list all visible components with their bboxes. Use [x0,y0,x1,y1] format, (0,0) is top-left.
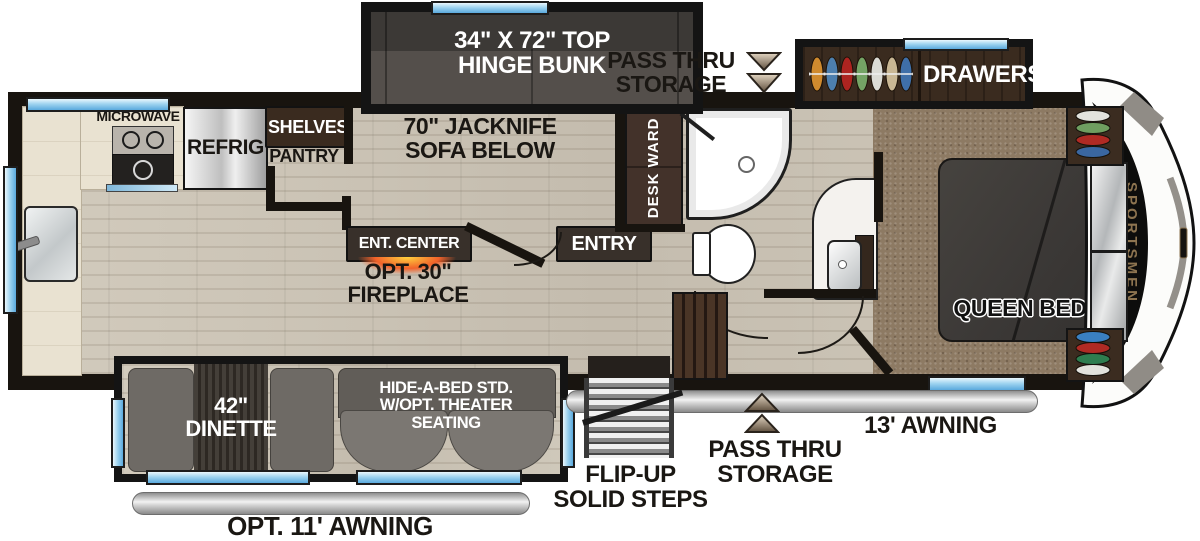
awning-13-label: 13' AWNING [838,413,1023,438]
bunk-window [431,1,549,15]
toilet-tank [692,232,711,276]
burner-icon [146,131,164,149]
pass-thru-up-arrows-icon [744,392,780,438]
slideout-window-bottom [146,470,310,485]
refrigerator: REFRIG [183,107,268,190]
wall-carpet-stub [874,152,883,222]
front-wardrobe-top [1066,106,1124,166]
interior-steps [672,292,728,380]
burner-icon [122,131,140,149]
drawers-label: DRAWERS [923,62,1025,87]
wardrobe-interior: DRAWERS [803,47,1025,101]
oven-burner-icon [133,160,153,180]
drawers-window [903,38,1009,51]
sink-drain-icon [838,260,847,269]
desk-wardrobe: DESK WARD [625,106,683,226]
clothes-hangers-icon [1068,108,1118,160]
pantry-wall [342,196,351,230]
dinette-slideout: 42"DINETTE HIDE-A-BED STD.W/OPT. THEATER… [114,356,568,482]
hide-a-bed-sofa: HIDE-A-BED STD.W/OPT. THEATERSEATING [338,368,554,472]
shelves-label: SHELVES [268,118,348,137]
entry-label: ENTRY [571,234,636,255]
dinette-label: 42"DINETTE [124,394,338,440]
pass-thru-bottom-label: PASS THRUSTORAGE [690,437,860,487]
jacknife-sofa-label: 70" JACKNIFESOFA BELOW [350,114,610,162]
door-threshold [588,356,670,378]
shelves-cabinet: SHELVES [265,106,351,148]
desk-ward-label: DESK WARD [646,108,662,228]
hide-a-bed-label: HIDE-A-BED STD.W/OPT. THEATERSEATING [338,380,554,432]
clothes-hangers-icon [1068,330,1118,376]
oven-handle [106,184,178,192]
shower-drain-icon [738,156,755,173]
pantry-wall [266,202,350,211]
rv-floorplan: MICROWAVE REFRIG SHELVES PANTRY 70" JACK… [0,0,1200,541]
slideout-window-bottom [356,470,522,485]
kitchen-window [26,97,170,112]
headboard-mirror [1090,162,1128,342]
awning-11-label: OPT. 11' AWNING [170,513,490,540]
pantry-label: PANTRY [258,147,350,166]
left-wall-window [3,166,18,314]
ent-center-label: ENT. CENTER [359,236,460,253]
pass-thru-down-arrows-icon [746,50,782,96]
wall-desk-bottom [615,224,685,232]
front-wardrobe-bottom [1066,328,1124,382]
slideout-window-left [111,398,125,468]
wall-desk-left [615,106,625,226]
refrig-label: REFRIG [187,137,264,159]
clothes-hangers-icon [805,47,917,101]
fireplace-label: OPT. 30"FIREPLACE [338,260,478,306]
pass-thru-top-label: PASS THRUSTORAGE [596,48,746,96]
kz-emblem [1180,228,1187,258]
